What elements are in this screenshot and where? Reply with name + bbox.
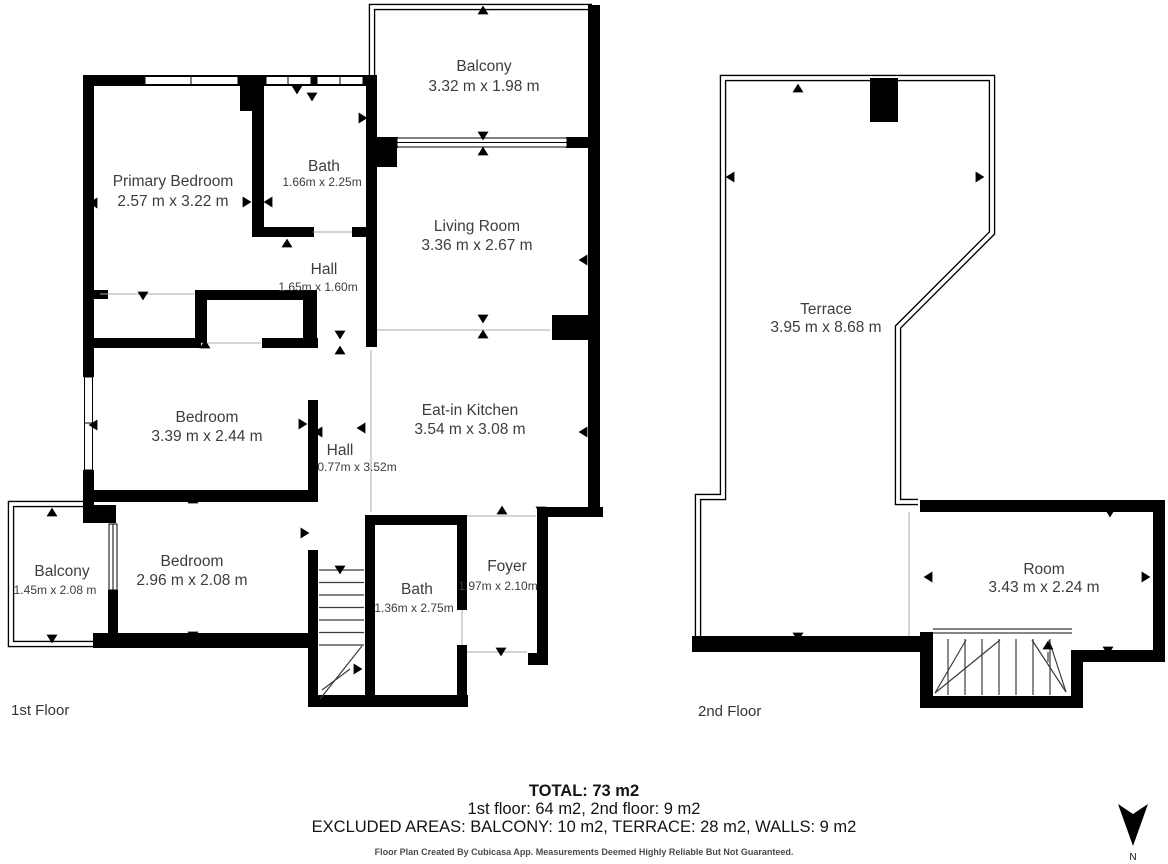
door-arrow-icon bbox=[579, 427, 588, 438]
terrace-outline bbox=[698, 78, 992, 641]
room-label-kitchen: Eat-in Kitchen 3.54 m x 3.08 m bbox=[414, 402, 525, 438]
door-arrow-icon bbox=[1142, 572, 1151, 583]
room-name: Balcony bbox=[456, 58, 511, 75]
room-name: Terrace bbox=[800, 301, 852, 318]
wall-segment bbox=[365, 515, 467, 525]
room-dims: 3.36 m x 2.67 m bbox=[421, 237, 532, 254]
door-arrow-icon bbox=[299, 419, 308, 430]
room-name: Hall bbox=[311, 261, 338, 278]
door-arrow-icon bbox=[282, 239, 293, 248]
room-label-primary-bedroom: Primary Bedroom 2.57 m x 3.22 m bbox=[113, 173, 234, 210]
door-arrow-icon bbox=[301, 528, 310, 539]
door-arrow-icon bbox=[292, 86, 303, 95]
room-dims: 2.96 m x 2.08 m bbox=[136, 572, 247, 589]
summary-text: TOTAL: 73 m2 1st floor: 64 m2, 2nd floor… bbox=[312, 782, 857, 857]
floor-label-1st: 1st Floor bbox=[11, 702, 69, 719]
terrace-outline-inner bbox=[698, 78, 992, 641]
door-arrow-icon bbox=[335, 346, 346, 355]
door-arrow-icon bbox=[264, 197, 273, 208]
summary-excluded: EXCLUDED AREAS: BALCONY: 10 m2, TERRACE:… bbox=[312, 818, 857, 836]
north-compass: N bbox=[1118, 804, 1148, 863]
wall-segment bbox=[195, 290, 207, 343]
stair-run-line bbox=[322, 669, 350, 690]
door-arrow-icon bbox=[478, 147, 489, 156]
room-label-bedroom-mid: Bedroom 3.39 m x 2.44 m bbox=[151, 409, 262, 445]
wall-segment bbox=[252, 75, 264, 237]
room-dims: 3.39 m x 2.44 m bbox=[151, 428, 262, 445]
room-label-foyer: Foyer 1.97m x 2.10m bbox=[458, 558, 537, 593]
room-label-balcony-bottom: Balcony 1.45m x 2.08 m bbox=[14, 563, 97, 597]
walls-first-floor bbox=[83, 5, 603, 707]
room-name: Balcony bbox=[34, 563, 89, 580]
wall-segment bbox=[308, 400, 318, 502]
room-name: Foyer bbox=[487, 558, 527, 575]
room-dims: 1.97m x 2.10m bbox=[458, 579, 537, 593]
wall-segment bbox=[366, 75, 377, 347]
door-arrow-icon bbox=[478, 315, 489, 324]
room-dims: 3.43 m x 2.24 m bbox=[988, 579, 1099, 596]
wall-segment bbox=[566, 137, 588, 148]
room-name: Primary Bedroom bbox=[113, 173, 234, 190]
wall-segment bbox=[108, 590, 118, 636]
summary-floors: 1st floor: 64 m2, 2nd floor: 9 m2 bbox=[468, 800, 701, 818]
wall-segment bbox=[93, 490, 310, 502]
room-dims: 0.77m x 3.52m bbox=[317, 460, 396, 474]
door-arrow-icon bbox=[579, 255, 588, 266]
wall-segment bbox=[352, 227, 377, 237]
room-label-bath-bottom: Bath 1.36m x 2.75m bbox=[374, 581, 453, 615]
floor-label-2nd: 2nd Floor bbox=[698, 703, 761, 720]
wall-segment bbox=[83, 505, 116, 523]
wall-segment bbox=[92, 338, 201, 348]
wall-segment bbox=[457, 515, 467, 610]
door-arrow-icon bbox=[478, 330, 489, 339]
staircase-first-floor bbox=[319, 570, 364, 699]
terrace-thin-outline bbox=[698, 78, 992, 641]
wall-segment bbox=[83, 75, 94, 377]
first-floor-plan: Balcony 3.32 m x 1.98 m Primary Bedroom … bbox=[11, 5, 603, 719]
stair-winder-line bbox=[935, 640, 1000, 693]
balcony-thin-outlines bbox=[11, 7, 592, 644]
walls-second-floor bbox=[692, 78, 1165, 708]
room-dims: 3.95 m x 8.68 m bbox=[770, 319, 881, 336]
wall-segment bbox=[1153, 500, 1165, 662]
wall-segment bbox=[537, 507, 603, 517]
floor-plan-page: Balcony 3.32 m x 1.98 m Primary Bedroom … bbox=[0, 0, 1168, 864]
door-arrow-icon bbox=[726, 172, 735, 183]
floor-plan-svg: Balcony 3.32 m x 1.98 m Primary Bedroom … bbox=[0, 0, 1168, 864]
room-name: Bath bbox=[308, 158, 340, 175]
wall-segment bbox=[308, 550, 318, 707]
room-name: Bedroom bbox=[176, 409, 239, 426]
room-dims: 3.54 m x 3.08 m bbox=[414, 421, 525, 438]
wall-segment bbox=[920, 696, 1083, 708]
disclaimer-text: Floor Plan Created By Cubicasa App. Meas… bbox=[375, 847, 794, 857]
wall-segment bbox=[870, 78, 898, 122]
door-arrow-icon bbox=[354, 664, 363, 675]
room-label-bedroom-bottom: Bedroom 2.96 m x 2.08 m bbox=[136, 553, 247, 589]
door-arrow-icon bbox=[1043, 641, 1054, 650]
room-labels-second-floor: Terrace 3.95 m x 8.68 m Room 3.43 m x 2.… bbox=[770, 301, 1099, 596]
room-label-hall-top: Hall 1.65m x 1.60m bbox=[278, 261, 357, 294]
wall-segment bbox=[588, 5, 600, 512]
staircase-second-floor bbox=[933, 629, 1072, 695]
wall-segment bbox=[252, 227, 314, 237]
room-dims: 3.32 m x 1.98 m bbox=[428, 78, 539, 95]
room-label-terrace: Terrace 3.95 m x 8.68 m bbox=[770, 301, 881, 336]
door-arrow-icon bbox=[1105, 509, 1116, 518]
door-arrow-icon bbox=[243, 197, 252, 208]
door-arrow-icon bbox=[793, 84, 804, 93]
north-label: N bbox=[1129, 852, 1136, 863]
door-arrow-icon bbox=[924, 572, 933, 583]
wall-segment bbox=[93, 633, 310, 648]
door-arrow-icon bbox=[335, 331, 346, 340]
stair-winder-line bbox=[935, 640, 966, 693]
room-dims: 1.45m x 2.08 m bbox=[14, 583, 97, 597]
door-arrow-icon bbox=[47, 508, 58, 517]
room-label-hall-vertical: Hall 0.77m x 3.52m bbox=[317, 442, 396, 474]
summary-total: TOTAL: 73 m2 bbox=[529, 782, 639, 800]
wall-segment bbox=[262, 338, 318, 348]
room-label-room: Room 3.43 m x 2.24 m bbox=[988, 561, 1099, 596]
wall-segment bbox=[552, 315, 590, 340]
room-name: Room bbox=[1023, 561, 1064, 578]
wall-segment bbox=[372, 137, 398, 148]
door-arrow-icon bbox=[307, 93, 318, 102]
door-arrow-icon bbox=[497, 506, 508, 515]
wall-segment bbox=[692, 636, 926, 652]
wall-segment bbox=[308, 695, 468, 707]
door-arrows-second-floor bbox=[726, 84, 1151, 656]
room-dims: 1.65m x 1.60m bbox=[278, 280, 357, 294]
room-label-balcony-top: Balcony 3.32 m x 1.98 m bbox=[428, 58, 539, 95]
wall-segment bbox=[1080, 650, 1165, 662]
wall-segment bbox=[83, 470, 94, 510]
room-dims: 2.57 m x 3.22 m bbox=[117, 193, 228, 210]
second-floor-plan: Terrace 3.95 m x 8.68 m Room 3.43 m x 2.… bbox=[692, 78, 1165, 720]
door-arrow-icon bbox=[976, 172, 985, 183]
room-label-living-room: Living Room 3.36 m x 2.67 m bbox=[421, 218, 532, 254]
wall-segment bbox=[457, 645, 467, 707]
room-name: Eat-in Kitchen bbox=[422, 402, 519, 419]
wall-segment bbox=[537, 517, 548, 665]
room-name: Living Room bbox=[434, 218, 520, 235]
wall-segment bbox=[528, 653, 548, 665]
wall-segment bbox=[920, 500, 1165, 512]
room-dims: 1.36m x 2.75m bbox=[374, 601, 453, 615]
wall-segment bbox=[1071, 650, 1083, 708]
door-arrow-icon bbox=[138, 292, 149, 301]
room-name: Hall bbox=[327, 442, 354, 459]
room-label-bath-top: Bath 1.66m x 2.25m bbox=[282, 158, 361, 189]
room-name: Bedroom bbox=[161, 553, 224, 570]
room-name: Bath bbox=[401, 581, 433, 598]
north-arrow-icon bbox=[1118, 804, 1148, 846]
windows-first-floor bbox=[85, 77, 568, 591]
room-dims: 1.66m x 2.25m bbox=[282, 175, 361, 189]
door-arrow-icon bbox=[357, 423, 366, 434]
